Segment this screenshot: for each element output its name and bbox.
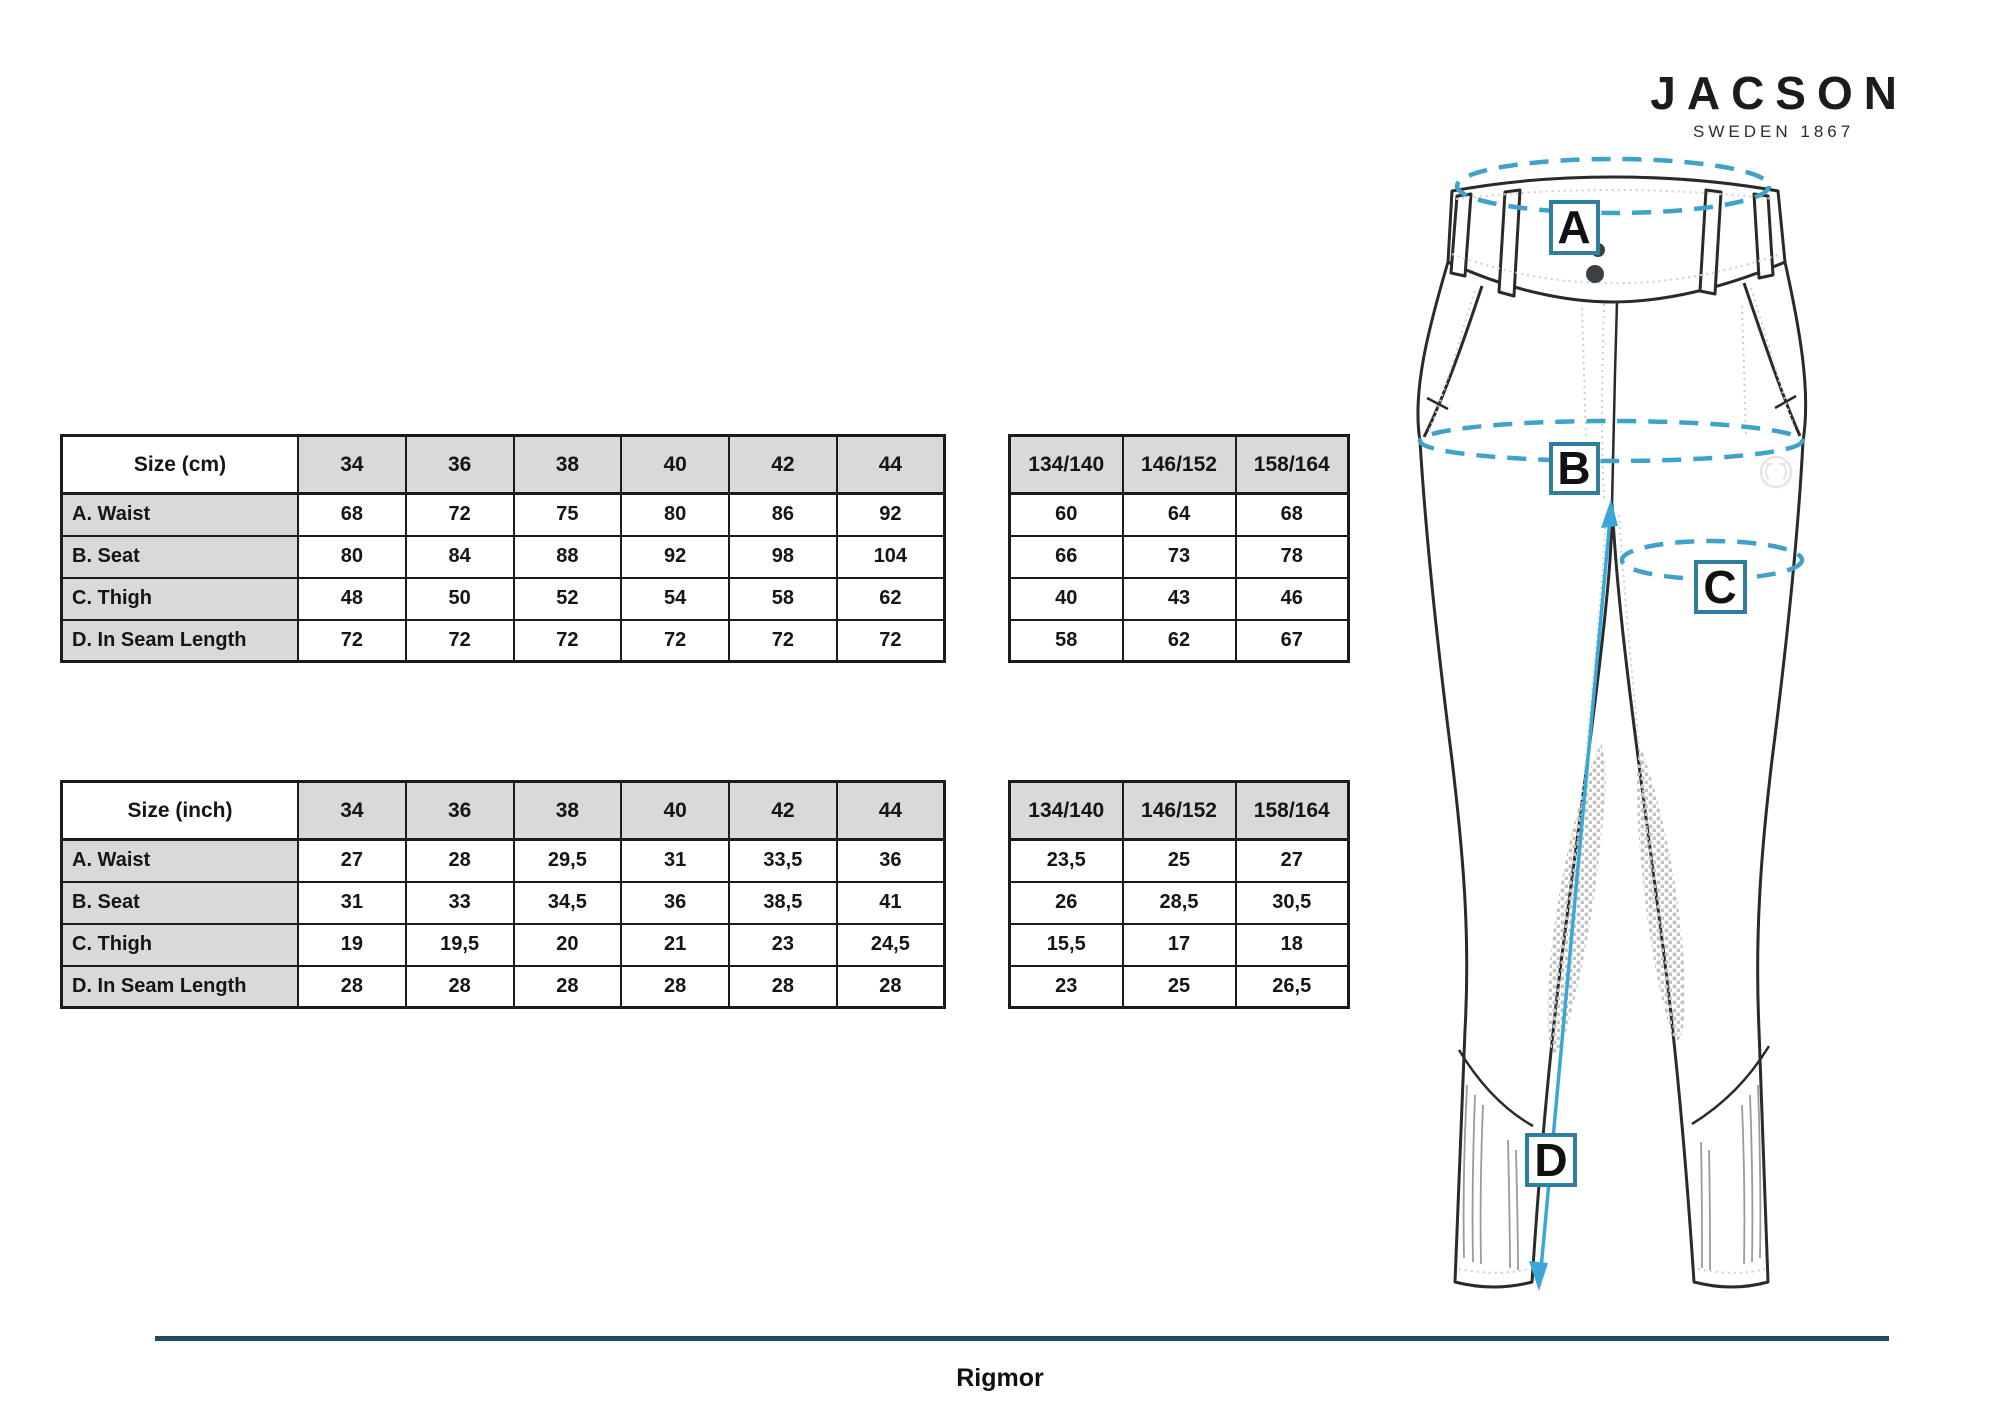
size-column-header: 36 [406, 436, 514, 494]
value-cell: 68 [298, 494, 406, 536]
size-column-header: 146/152 [1123, 436, 1236, 494]
value-cell: 19 [298, 924, 406, 966]
row-label-cell: B. Seat [62, 882, 299, 924]
value-cell: 27 [1236, 840, 1349, 882]
value-cell: 36 [621, 882, 729, 924]
header-row: 134/140146/152158/164 [1010, 436, 1349, 494]
value-cell: 50 [406, 578, 514, 620]
value-cell: 92 [621, 536, 729, 578]
value-cell: 38,5 [729, 882, 837, 924]
label-d: D [1534, 1134, 1567, 1186]
row-label-cell: D. In Seam Length [62, 620, 299, 662]
value-cell: 40 [1010, 578, 1123, 620]
value-cell: 26 [1010, 882, 1123, 924]
size-column-header: 158/164 [1236, 436, 1349, 494]
label-a: A [1557, 201, 1590, 253]
value-cell: 60 [1010, 494, 1123, 536]
table-row: D. In Seam Length282828282828 [62, 966, 945, 1008]
size-column-header: 42 [729, 782, 837, 840]
value-cell: 41 [837, 882, 945, 924]
value-cell: 72 [406, 494, 514, 536]
size-column-header: 40 [621, 436, 729, 494]
value-cell: 80 [621, 494, 729, 536]
value-cell: 25 [1123, 840, 1236, 882]
value-cell: 62 [1123, 620, 1236, 662]
value-cell: 36 [837, 840, 945, 882]
value-cell: 31 [621, 840, 729, 882]
value-cell: 30,5 [1236, 882, 1349, 924]
value-cell: 72 [514, 620, 622, 662]
size-column-header: 40 [621, 782, 729, 840]
value-cell: 21 [621, 924, 729, 966]
table-row: 23,52527 [1010, 840, 1349, 882]
table-row: A. Waist272829,53133,536 [62, 840, 945, 882]
value-cell: 28 [729, 966, 837, 1008]
value-cell: 67 [1236, 620, 1349, 662]
size-table-cm: Size (cm)343638404244A. Waist68727580869… [60, 434, 946, 663]
value-cell: 28 [406, 840, 514, 882]
breeches-body-outline [1418, 262, 1806, 1287]
table-title-cell: Size (cm) [62, 436, 299, 494]
value-cell: 104 [837, 536, 945, 578]
value-cell: 31 [298, 882, 406, 924]
label-b: B [1557, 442, 1590, 494]
value-cell: 29,5 [514, 840, 622, 882]
value-cell: 20 [514, 924, 622, 966]
value-cell: 78 [1236, 536, 1349, 578]
row-label-cell: C. Thigh [62, 578, 299, 620]
table-row: 232526,5 [1010, 966, 1349, 1008]
value-cell: 58 [729, 578, 837, 620]
row-label-cell: C. Thigh [62, 924, 299, 966]
size-column-header: 158/164 [1236, 782, 1349, 840]
row-label-cell: A. Waist [62, 840, 299, 882]
size-column-header: 42 [729, 436, 837, 494]
value-cell: 28,5 [1123, 882, 1236, 924]
value-cell: 24,5 [837, 924, 945, 966]
value-cell: 23 [729, 924, 837, 966]
value-cell: 58 [1010, 620, 1123, 662]
table-row: 2628,530,5 [1010, 882, 1349, 924]
size-column-header: 44 [837, 782, 945, 840]
value-cell: 28 [514, 966, 622, 1008]
table-row: C. Thigh485052545862 [62, 578, 945, 620]
value-cell: 15,5 [1010, 924, 1123, 966]
value-cell: 18 [1236, 924, 1349, 966]
value-cell: 43 [1123, 578, 1236, 620]
value-cell: 68 [1236, 494, 1349, 536]
size-column-header: 134/140 [1010, 436, 1123, 494]
value-cell: 46 [1236, 578, 1349, 620]
table-row: D. In Seam Length727272727272 [62, 620, 945, 662]
value-cell: 64 [1123, 494, 1236, 536]
value-cell: 17 [1123, 924, 1236, 966]
size-column-header: 146/152 [1123, 782, 1236, 840]
value-cell: 28 [298, 966, 406, 1008]
table-row: 404346 [1010, 578, 1349, 620]
size-chart-page: JACSON SWEDEN 1867 Size (cm)343638404244… [0, 0, 2000, 1415]
product-name: Rigmor [0, 1364, 2000, 1393]
value-cell: 33 [406, 882, 514, 924]
table-title-cell: Size (inch) [62, 782, 299, 840]
size-column-header: 36 [406, 782, 514, 840]
size-column-header: 34 [298, 436, 406, 494]
value-cell: 28 [621, 966, 729, 1008]
value-cell: 73 [1123, 536, 1236, 578]
value-cell: 28 [837, 966, 945, 1008]
size-column-header: 34 [298, 782, 406, 840]
table-row: C. Thigh1919,520212324,5 [62, 924, 945, 966]
value-cell: 72 [298, 620, 406, 662]
size-table-inch: Size (inch)343638404244A. Waist272829,53… [60, 780, 946, 1009]
table-row: 606468 [1010, 494, 1349, 536]
header-row: Size (cm)343638404244 [62, 436, 945, 494]
value-cell: 72 [406, 620, 514, 662]
size-table-inch-kids: 134/140146/152158/16423,525272628,530,51… [1008, 780, 1350, 1009]
value-cell: 19,5 [406, 924, 514, 966]
header-row: Size (inch)343638404244 [62, 782, 945, 840]
value-cell: 84 [406, 536, 514, 578]
value-cell: 23 [1010, 966, 1123, 1008]
brand-name: JACSON [1650, 70, 1908, 116]
value-cell: 88 [514, 536, 622, 578]
value-cell: 34,5 [514, 882, 622, 924]
value-cell: 48 [298, 578, 406, 620]
value-cell: 52 [514, 578, 622, 620]
value-cell: 75 [514, 494, 622, 536]
table-row: B. Seat8084889298104 [62, 536, 945, 578]
value-cell: 33,5 [729, 840, 837, 882]
value-cell: 25 [1123, 966, 1236, 1008]
value-cell: 92 [837, 494, 945, 536]
table-row: B. Seat313334,53638,541 [62, 882, 945, 924]
value-cell: 72 [621, 620, 729, 662]
value-cell: 23,5 [1010, 840, 1123, 882]
value-cell: 62 [837, 578, 945, 620]
value-cell: 98 [729, 536, 837, 578]
row-label-cell: B. Seat [62, 536, 299, 578]
size-table-cm-kids: 134/140146/152158/1646064686673784043465… [1008, 434, 1350, 663]
header-row: 134/140146/152158/164 [1010, 782, 1349, 840]
value-cell: 66 [1010, 536, 1123, 578]
table-row: A. Waist687275808692 [62, 494, 945, 536]
label-c: C [1703, 561, 1736, 613]
size-column-header: 134/140 [1010, 782, 1123, 840]
row-label-cell: D. In Seam Length [62, 966, 299, 1008]
size-column-header: 38 [514, 782, 622, 840]
table-row: 586267 [1010, 620, 1349, 662]
row-label-cell: A. Waist [62, 494, 299, 536]
value-cell: 86 [729, 494, 837, 536]
value-cell: 26,5 [1236, 966, 1349, 1008]
value-cell: 54 [621, 578, 729, 620]
footer-divider [155, 1336, 1889, 1341]
value-cell: 80 [298, 536, 406, 578]
size-column-header: 44 [837, 436, 945, 494]
value-cell: 28 [406, 966, 514, 1008]
breeches-technical-drawing: A B C D [1395, 130, 1830, 1300]
table-row: 15,51718 [1010, 924, 1349, 966]
value-cell: 72 [837, 620, 945, 662]
table-row: 667378 [1010, 536, 1349, 578]
value-cell: 27 [298, 840, 406, 882]
value-cell: 72 [729, 620, 837, 662]
size-column-header: 38 [514, 436, 622, 494]
